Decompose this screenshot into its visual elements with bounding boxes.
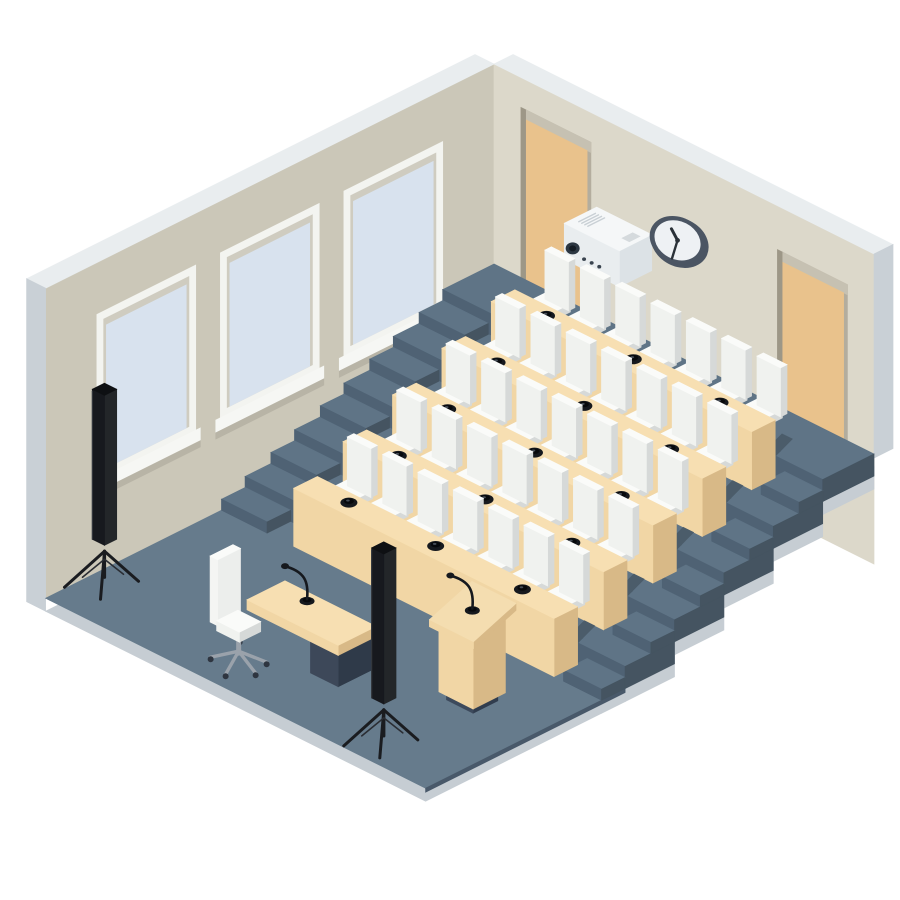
gooseneck-capsule (281, 563, 289, 569)
chair-back-side (675, 312, 682, 364)
chair-back-side (569, 259, 575, 311)
chair-back-side (597, 487, 603, 539)
chair-back-side (604, 276, 611, 328)
column-speaker-front (92, 389, 104, 545)
chair-back-side (512, 516, 519, 568)
caster-wheel (264, 661, 270, 667)
column-speaker-side (105, 389, 117, 545)
chair-back-side (611, 423, 618, 475)
door-panel (783, 262, 844, 438)
isometric-room-scene (0, 0, 900, 900)
projector-port-icon (582, 257, 586, 261)
mic-highlight (346, 500, 350, 502)
chair-back-side (682, 458, 689, 510)
chair-back-side (526, 452, 533, 504)
desk-microphone-icon (340, 498, 357, 508)
chair-back-side (371, 445, 377, 497)
gooseneck-capsule (446, 572, 454, 578)
chair-back-side (456, 416, 463, 468)
auditorium-illustration (0, 0, 900, 900)
mic-highlight (433, 543, 437, 545)
caster-wheel (223, 673, 229, 679)
desk-side (653, 513, 677, 583)
chair-back-side (406, 463, 413, 515)
desk-microphone-icon (514, 584, 531, 594)
desk-side (554, 607, 578, 677)
chair-back-side (639, 294, 645, 346)
chair-back-side (731, 411, 738, 463)
column-speaker-front (372, 548, 384, 704)
chair-back-side (710, 329, 717, 381)
projector-lens-inner (569, 245, 576, 251)
chair-back-side (540, 387, 546, 439)
desk-microphone-icon (427, 541, 444, 551)
mic-highlight (520, 586, 524, 588)
chair-back-side (491, 434, 497, 486)
chair-back-side (632, 505, 639, 557)
desk-side (752, 420, 776, 490)
chair-back-side (696, 394, 702, 446)
chair-back-side (442, 481, 448, 533)
chair-back-side (470, 352, 476, 404)
chair-back-side (745, 347, 751, 399)
chair-back-side (505, 370, 512, 422)
caster-wheel (253, 672, 259, 678)
chair-back-side (562, 469, 569, 521)
chair-back-side (519, 305, 525, 357)
chair-back-side (576, 405, 583, 457)
column-speaker-side (384, 548, 396, 704)
chair-back-side (625, 358, 632, 410)
projector-port-icon (597, 265, 601, 269)
left-wall-end-edge (27, 279, 46, 612)
chair-back-side (548, 534, 554, 586)
desk-side (702, 467, 726, 537)
caster-wheel (208, 656, 214, 662)
chair-back-side (583, 551, 590, 603)
right-wall-end-edge (874, 245, 893, 459)
chair-back-side (590, 341, 596, 393)
chair-back-side (660, 376, 667, 428)
door-jamb (521, 108, 526, 281)
projector-port-icon (590, 261, 594, 265)
chair-back-side (477, 498, 484, 550)
chair-back-side (420, 399, 426, 451)
chair-back-side (554, 323, 561, 375)
desk-side (603, 560, 627, 630)
chair-back-side (781, 365, 788, 417)
chair-back-side (646, 440, 652, 492)
office-chair-back-front (210, 556, 218, 626)
